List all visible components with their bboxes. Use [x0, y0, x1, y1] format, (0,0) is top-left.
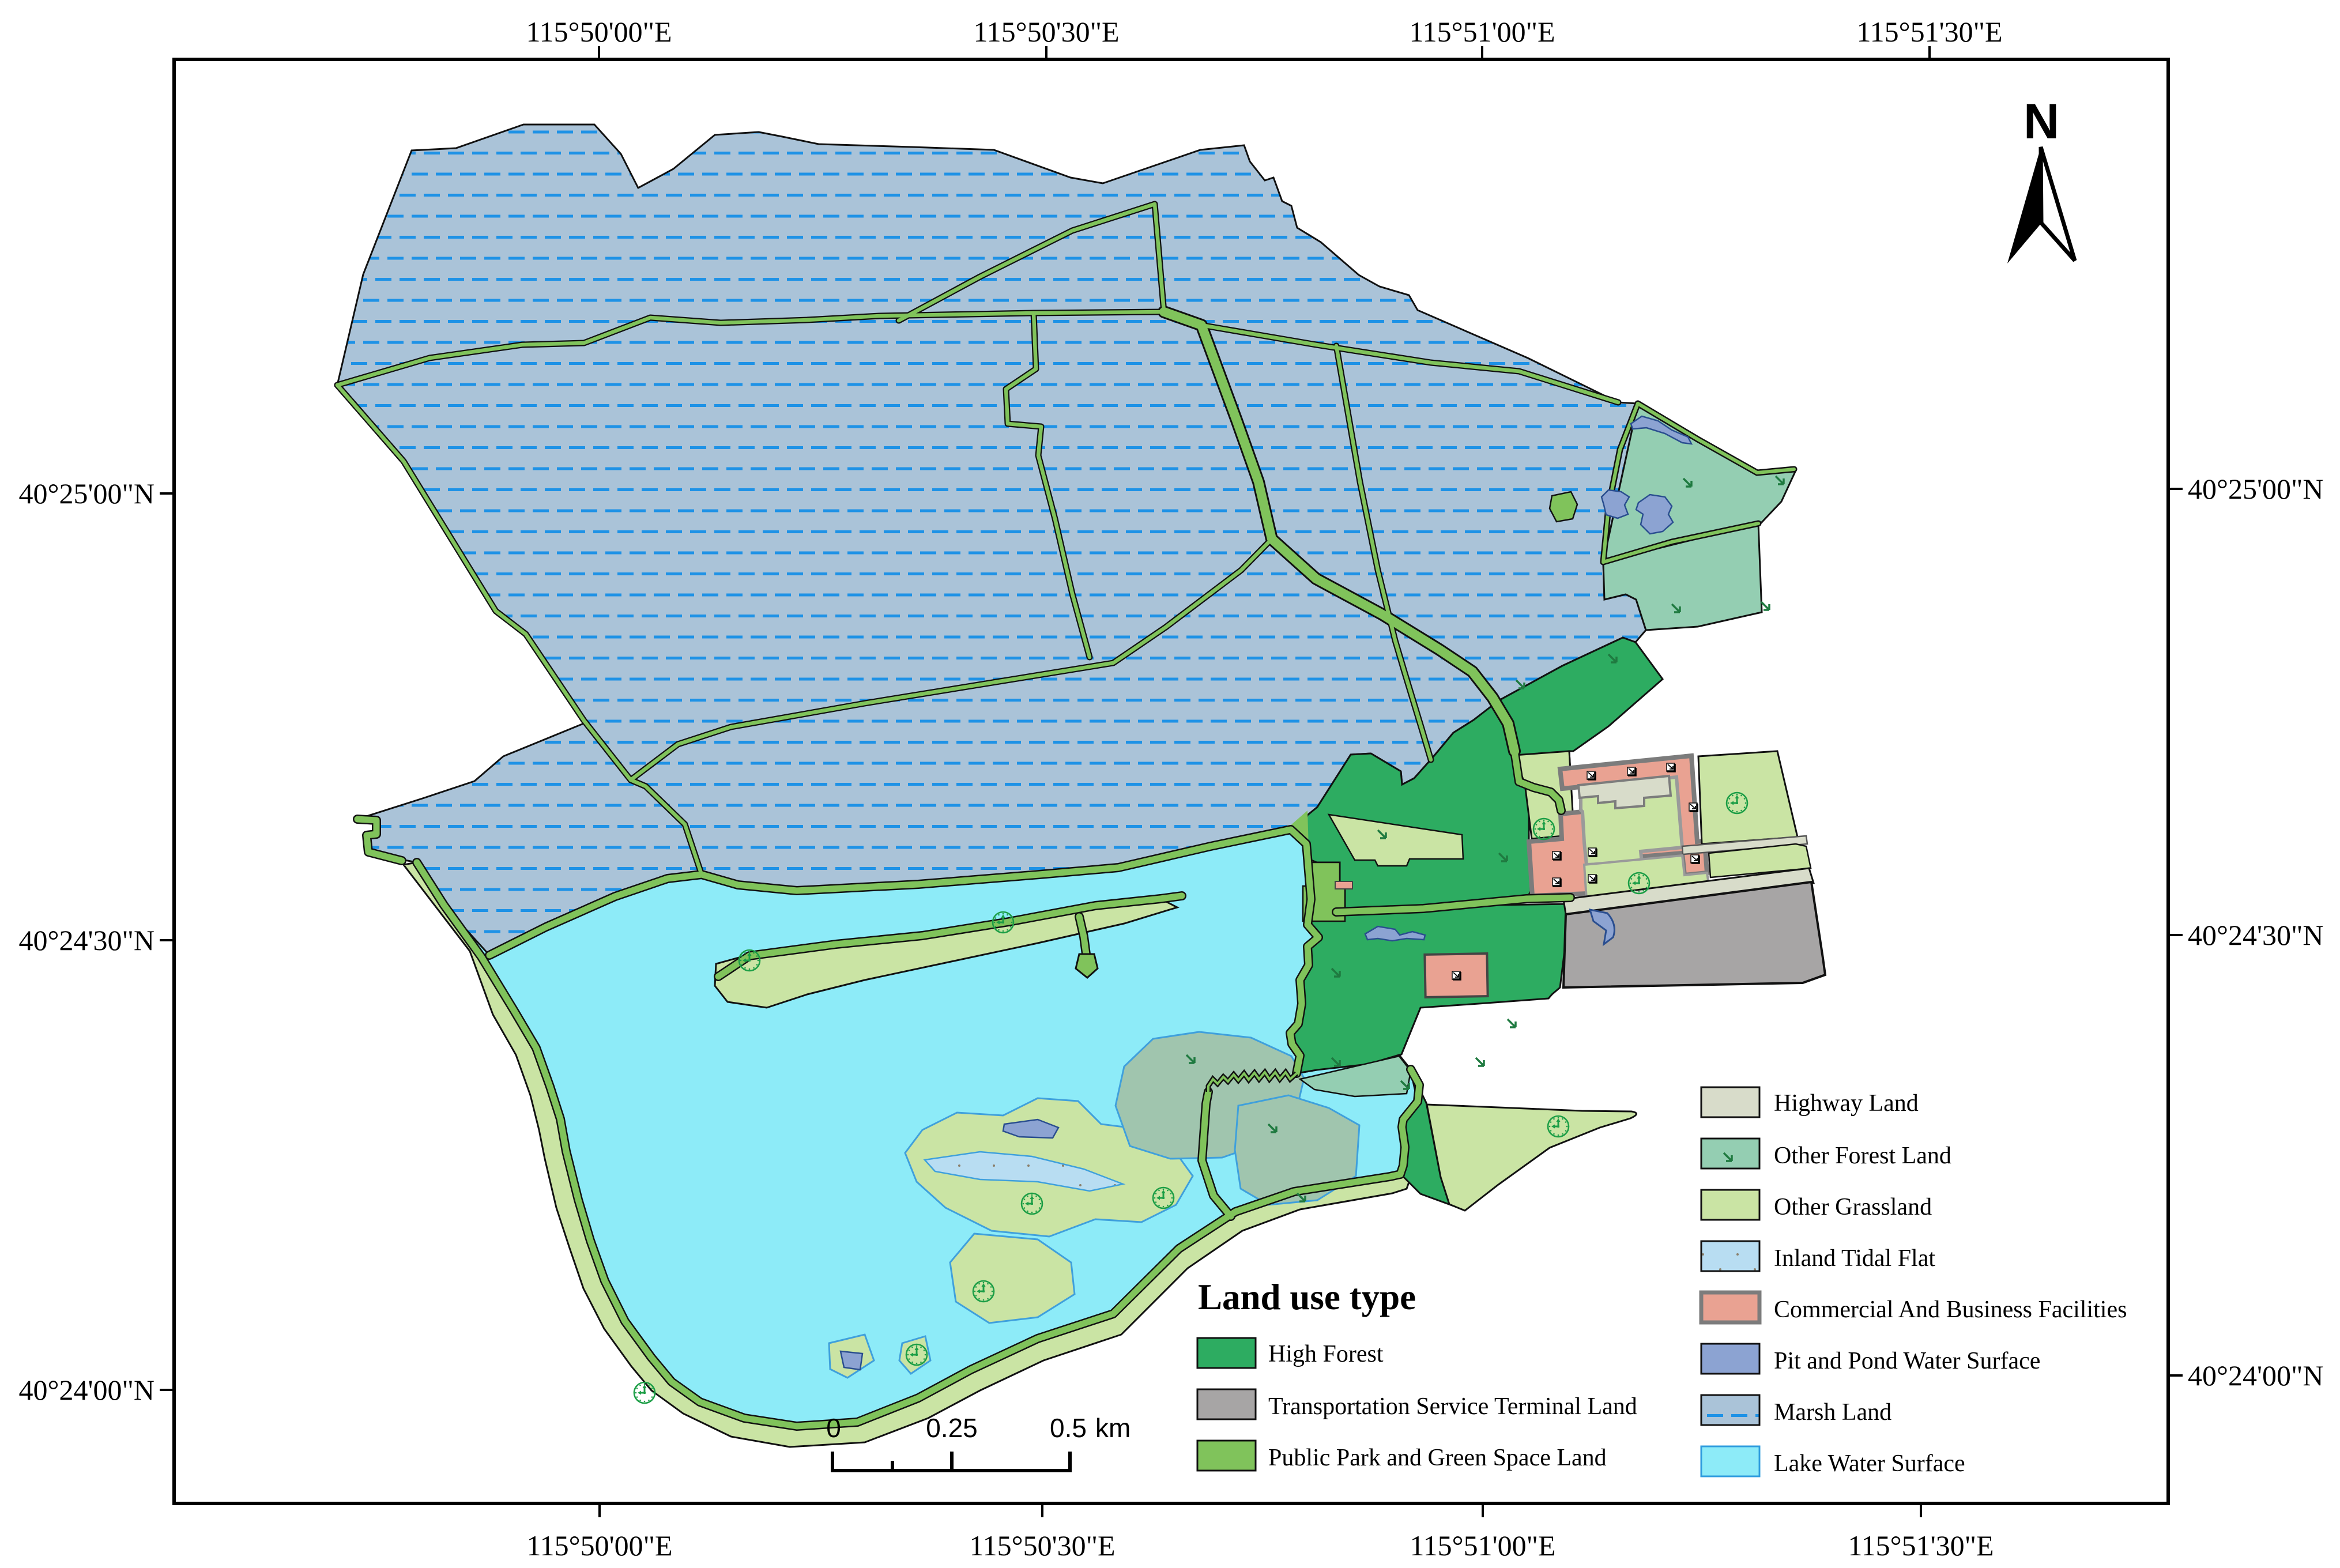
svg-text:40°24'30"N: 40°24'30"N [18, 924, 155, 956]
svg-text:Land use type: Land use type [1198, 1277, 1416, 1317]
svg-text:Public Park and Green Space La: Public Park and Green Space Land [1268, 1445, 1607, 1471]
svg-text:115°50'30"E: 115°50'30"E [973, 16, 1119, 48]
svg-text:km: km [1095, 1413, 1131, 1443]
svg-text:0: 0 [826, 1413, 841, 1443]
svg-text:115°50'30"E: 115°50'30"E [969, 1529, 1115, 1562]
svg-text:115°50'00"E: 115°50'00"E [526, 16, 672, 48]
svg-text:Other Grassland: Other Grassland [1774, 1194, 1932, 1220]
svg-text:Pit and Pond Water Surface: Pit and Pond Water Surface [1774, 1348, 2040, 1374]
svg-text:Highway Land: Highway Land [1774, 1090, 1919, 1117]
svg-text:Other Forest Land: Other Forest Land [1774, 1143, 1951, 1169]
svg-text:Transportation Service Termina: Transportation Service Terminal Land [1268, 1393, 1637, 1420]
svg-text:115°51'00"E: 115°51'00"E [1409, 16, 1555, 48]
svg-text:40°25'00"N: 40°25'00"N [18, 477, 155, 510]
svg-text:40°24'00"N: 40°24'00"N [18, 1374, 155, 1406]
svg-text:115°51'30"E: 115°51'30"E [1856, 16, 2002, 48]
svg-text:40°25'00"N: 40°25'00"N [2188, 473, 2324, 505]
svg-text:Marsh Land: Marsh Land [1774, 1399, 1891, 1426]
svg-text:High Forest: High Forest [1268, 1341, 1384, 1367]
svg-text:0.25: 0.25 [926, 1413, 978, 1443]
svg-text:115°51'30"E: 115°51'30"E [1848, 1529, 1994, 1562]
svg-text:Inland Tidal Flat: Inland Tidal Flat [1774, 1245, 1935, 1272]
svg-text:40°24'30"N: 40°24'30"N [2188, 919, 2324, 951]
svg-text:115°51'00"E: 115°51'00"E [1410, 1529, 1555, 1562]
svg-text:Commercial And Business Facili: Commercial And Business Facilities [1774, 1296, 2127, 1323]
svg-text:40°24'00"N: 40°24'00"N [2188, 1359, 2324, 1392]
svg-text:0.5: 0.5 [1050, 1413, 1087, 1443]
svg-text:Lake Water Surface: Lake Water Surface [1774, 1450, 1965, 1477]
svg-text:N: N [2024, 94, 2059, 149]
svg-text:115°50'00"E: 115°50'00"E [526, 1529, 672, 1562]
